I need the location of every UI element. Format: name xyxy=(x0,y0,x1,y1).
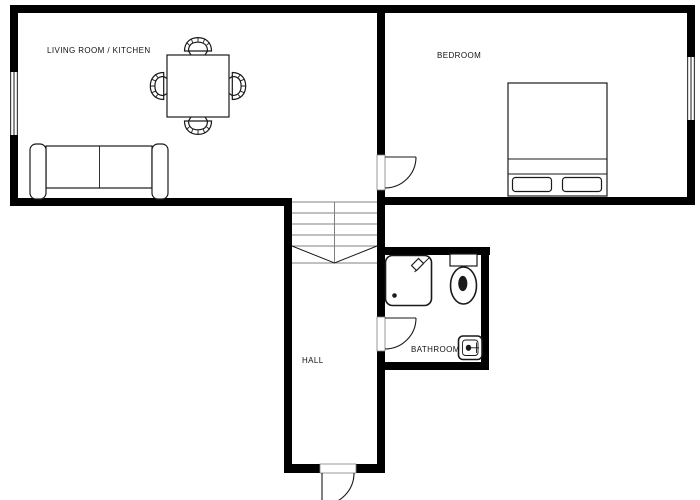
entrance-door xyxy=(322,473,354,500)
shower-drain xyxy=(392,293,397,298)
dining-table xyxy=(167,55,229,117)
toilet-tank xyxy=(450,254,477,266)
toilet-bowl-hole xyxy=(458,276,467,291)
wall-bedroom-bottom xyxy=(377,197,695,205)
dining-chair xyxy=(185,117,212,135)
double-bed xyxy=(508,83,607,196)
shower-tray xyxy=(386,256,432,306)
bathroom-door-opening xyxy=(377,317,385,351)
floor-plan-drawing xyxy=(0,0,700,500)
sofa-seat xyxy=(46,146,152,188)
room-label-living-room-kitchen: LIVING ROOM / KITCHEN xyxy=(47,46,151,55)
entrance-door-opening xyxy=(320,464,356,473)
staircase xyxy=(292,202,377,263)
wall-bathroom-bottom xyxy=(377,362,489,370)
walls xyxy=(10,5,695,473)
pillow xyxy=(563,178,602,192)
sink xyxy=(459,336,483,360)
wall-living-room-bottom xyxy=(10,198,292,206)
room-label-bathroom: BATHROOM xyxy=(411,345,460,354)
door-swing-arc xyxy=(322,473,354,500)
sofa-armrest-left xyxy=(30,144,46,199)
pillow xyxy=(513,178,552,192)
sofa-armrest-right xyxy=(152,144,168,199)
bedroom-window xyxy=(687,57,695,120)
sofa xyxy=(30,144,168,199)
room-label-bedroom: BEDROOM xyxy=(437,51,481,60)
living-room-window xyxy=(10,72,18,135)
bedroom-door-opening xyxy=(377,155,385,190)
dining-chair xyxy=(185,38,212,56)
dining-set xyxy=(150,38,245,135)
wall-top xyxy=(10,5,695,13)
toilet xyxy=(450,254,477,304)
floor-plan: LIVING ROOM / KITCHEN BEDROOM HALL BATHR… xyxy=(0,0,700,500)
bedroom-door xyxy=(385,157,416,188)
door-swing-arc xyxy=(385,157,416,188)
room-label-hall: HALL xyxy=(302,356,324,365)
wall-center xyxy=(377,5,385,473)
dining-chair xyxy=(150,73,168,100)
wall-hall-left xyxy=(284,198,292,473)
dining-chair xyxy=(228,73,246,100)
shower xyxy=(386,256,432,306)
